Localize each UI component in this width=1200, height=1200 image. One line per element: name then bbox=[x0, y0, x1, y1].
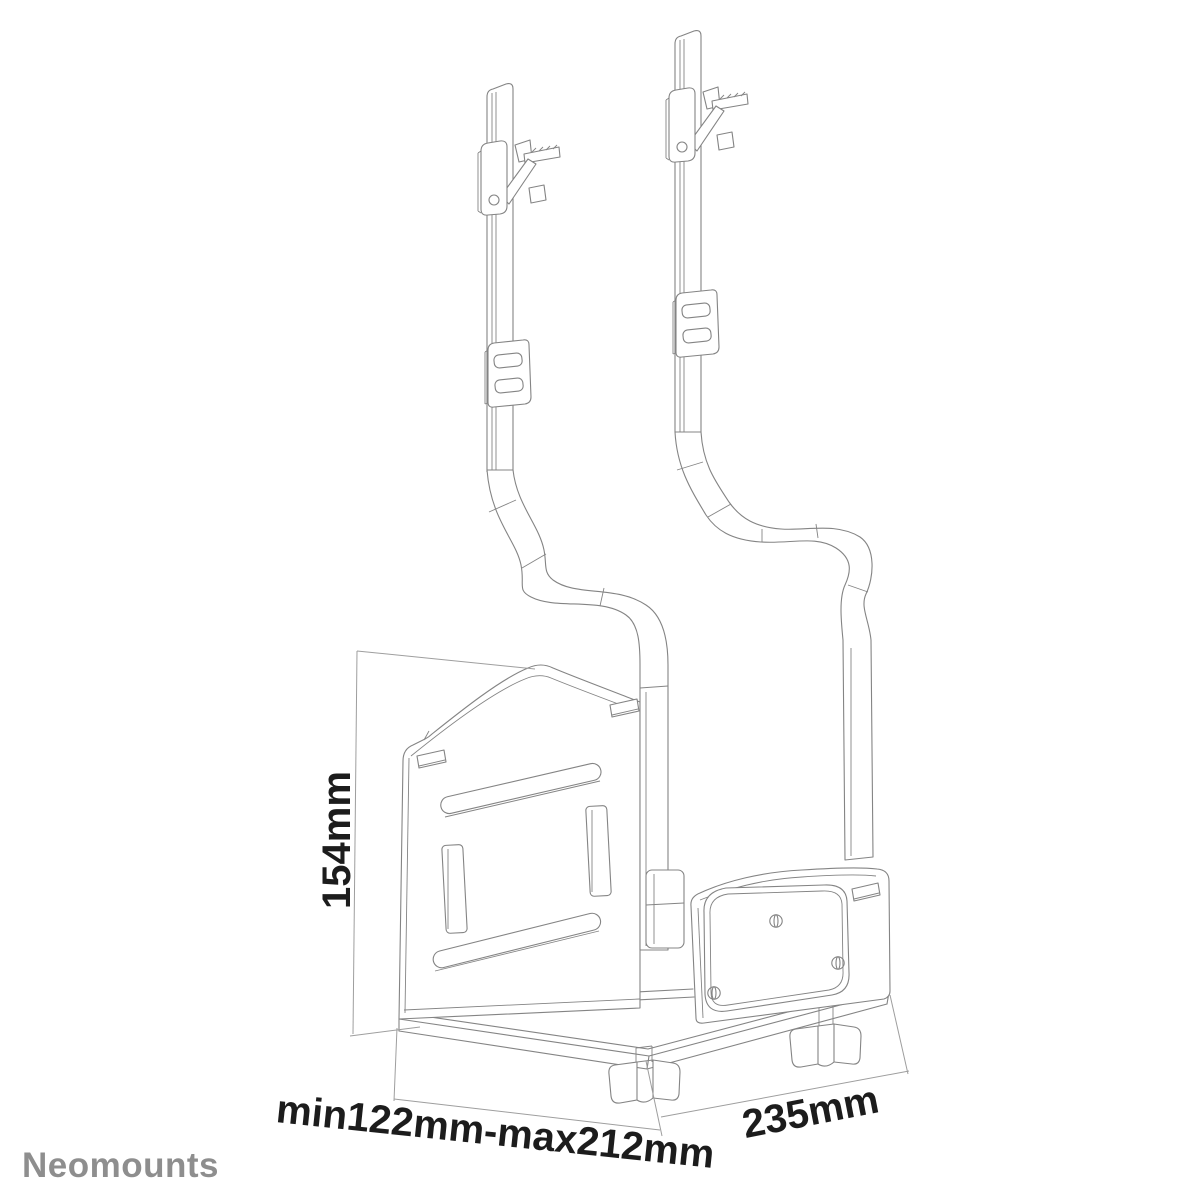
desk-hook-left bbox=[478, 140, 560, 215]
right-strap-band bbox=[675, 432, 873, 860]
holder-back-panel bbox=[399, 665, 640, 1019]
left-strap-end-clip bbox=[646, 870, 684, 948]
panel-vertical-slot-left bbox=[442, 844, 468, 933]
strap-buckle-right bbox=[673, 290, 719, 357]
neomounts-logo: Neomounts bbox=[22, 1146, 219, 1185]
depth-dimension-label: 235mm bbox=[739, 1077, 883, 1146]
wing-knob-front bbox=[609, 1046, 680, 1103]
right-strap bbox=[666, 31, 873, 860]
holder-clamp-panel bbox=[691, 868, 890, 1023]
strap-buckle-left bbox=[485, 340, 531, 407]
cpu-holder-technical-drawing: 154mm min122mm-max212mm 235mm Neomounts bbox=[0, 0, 1200, 1200]
panel-vertical-slot-right bbox=[586, 805, 612, 896]
desk-hook-right bbox=[666, 87, 748, 162]
height-dimension-label: 154mm bbox=[315, 771, 359, 909]
